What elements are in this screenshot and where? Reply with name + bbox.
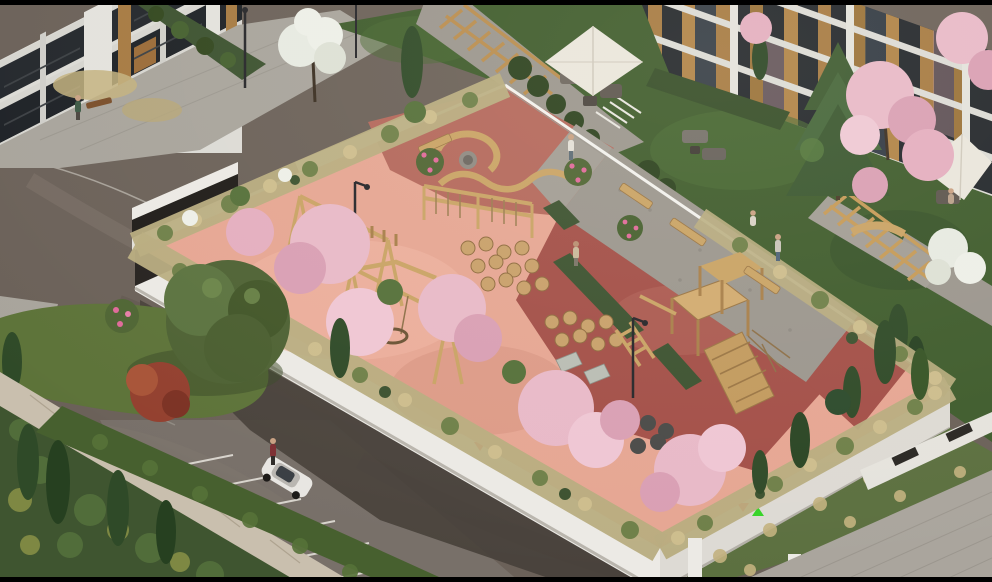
scene-render: Aerial 3D architectural render: resident…: [0, 0, 992, 582]
letterbox-top: [0, 0, 992, 5]
letterbox-bottom: [0, 577, 992, 582]
sunlight-overlay: [0, 0, 992, 582]
